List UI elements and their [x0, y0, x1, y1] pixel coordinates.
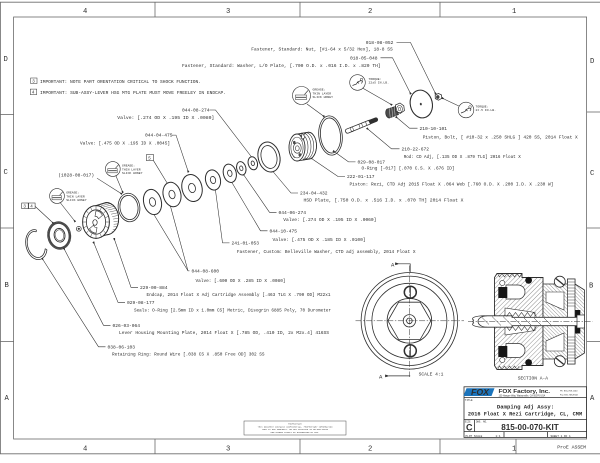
svg-text:Ph: 831-768-1100: Ph: 831-768-1100 — [560, 391, 578, 393]
svg-text:3: 3 — [226, 446, 230, 454]
svg-text:FOR OTHERS EXCEPT AS AUTHORIZE: FOR OTHERS EXCEPT AS AUTHORIZED BY FOX. — [271, 431, 320, 434]
svg-text:018-05-048: 018-05-048 — [350, 55, 378, 61]
svg-text:044-06-274: 044-06-274 — [279, 210, 307, 216]
svg-text:ProE ASSEM: ProE ASSEM — [557, 445, 586, 451]
svg-text:018-08-052: 018-08-052 — [366, 40, 394, 46]
svg-text:Seals: O-Ring [2.5mm ID x 1.0m: Seals: O-Ring [2.5mm ID x 1.0mm CS] Metr… — [134, 308, 331, 314]
svg-text:210-10-101: 210-10-101 — [420, 126, 448, 132]
svg-text:FOX: FOX — [471, 388, 490, 397]
svg-text:Piston, Bolt, [ #10-32 x .250: Piston, Bolt, [ #10-32 x .250 SHLG ] 420… — [423, 135, 578, 141]
svg-text:044-08-274: 044-08-274 — [182, 108, 210, 114]
svg-text:Retaining Ring: Round Wire [.0: Retaining Ring: Round Wire [.038 CS X .8… — [112, 351, 265, 357]
svg-text:Rod: CD Adj, [.135 OD X .879 T: Rod: CD Adj, [.135 OD X .879 TLG] 2016 F… — [404, 154, 521, 160]
svg-text:HSD Plate, [.750 O.D. x .516 I: HSD Plate, [.750 O.D. x .516 I.D. x .070… — [304, 198, 464, 204]
svg-text:IMPORTANT: SUB-ASSY-LEVER HSG: IMPORTANT: SUB-ASSY-LEVER HSG MTG PLATE … — [40, 90, 226, 96]
svg-text:130 Hanger Way, Watsonville, C: 130 Hanger Way, Watsonville, CA 95076 US… — [499, 395, 546, 398]
svg-text:4: 4 — [83, 446, 87, 454]
svg-text:FOX Factory, Inc.: FOX Factory, Inc. — [499, 389, 551, 395]
svg-text:234-04-432: 234-04-432 — [300, 191, 328, 197]
svg-text:C: C — [4, 169, 9, 177]
svg-text:Valve: [.475 OD X .195 ID X .0: Valve: [.475 OD X .195 ID X .0045] — [80, 141, 170, 147]
svg-text:229-00-884: 229-00-884 — [140, 285, 168, 291]
svg-text:029-08-017: 029-08-017 — [358, 159, 386, 165]
svg-text:Valve: [.475 OD X .185 ID X .0: Valve: [.475 OD X .185 ID X .0100] — [273, 237, 366, 243]
svg-text:1:1: 1:1 — [496, 435, 501, 438]
svg-text:Fastener, Standard: Washer, L/: Fastener, Standard: Washer, L/O Plate, [… — [182, 63, 381, 69]
svg-text:241-01-053: 241-01-053 — [232, 240, 260, 246]
svg-text:D: D — [590, 58, 594, 66]
svg-text:O-Ring [-017] [.070 C.S. X .67: O-Ring [-017] [.070 C.S. X .676 ID] — [362, 166, 455, 172]
svg-text:B: B — [5, 282, 10, 290]
svg-text:2: 2 — [368, 8, 372, 16]
svg-text:1: 1 — [512, 446, 516, 454]
svg-text:Fastener, Standard: Nut, [#1-6: Fastener, Standard: Nut, [#1-64 x 5/32 H… — [251, 47, 393, 53]
svg-text:B: B — [589, 283, 594, 291]
svg-text:029-08-177: 029-08-177 — [127, 300, 155, 306]
svg-text:SHEET 1 OF 1: SHEET 1 OF 1 — [551, 435, 571, 438]
svg-text:Piston: Rezi, CTD Adj 2015 Flo: Piston: Rezi, CTD Adj 2015 Float X .064 … — [350, 181, 554, 187]
svg-text:Damping Adj Assy:: Damping Adj Assy: — [497, 403, 554, 410]
svg-text:(1028-08-017): (1028-08-017) — [58, 173, 94, 179]
svg-text:3: 3 — [226, 8, 230, 16]
svg-text:D: D — [4, 56, 8, 64]
svg-text:222-01-117: 222-01-117 — [347, 174, 375, 180]
svg-text:Fax 831-768-9342: Fax 831-768-9342 — [560, 395, 579, 397]
svg-text:SCALE 4:1: SCALE 4:1 — [419, 371, 444, 377]
svg-text:SLICK HONEY: SLICK HONEY — [122, 171, 143, 175]
svg-text:TITLE: TITLE — [465, 399, 473, 402]
svg-text:026-03-064: 026-03-064 — [113, 323, 141, 329]
svg-text:2016 Float X Rezi Cartridge, C: 2016 Float X Rezi Cartridge, CL, CMM — [468, 411, 583, 418]
svg-text:2: 2 — [368, 446, 372, 454]
svg-text:038-06-103: 038-06-103 — [108, 344, 136, 350]
svg-text:044-04-475: 044-04-475 — [145, 133, 173, 139]
svg-text:2±.5 IN.LB.: 2±.5 IN.LB. — [476, 108, 497, 112]
svg-text:Lever Housing Mounting Plate,: Lever Housing Mounting Plate, 2014 Float… — [119, 330, 329, 336]
svg-text:Valve: [.600 OD X .285 ID X .0: Valve: [.600 OD X .285 ID X .0080] — [196, 278, 286, 284]
svg-text:C: C — [466, 423, 473, 433]
svg-text:1: 1 — [512, 8, 516, 16]
svg-text:210-22-672: 210-22-672 — [402, 146, 430, 152]
svg-text:Fastener, Custom: Belleville W: Fastener, Custom: Belleville Washer, CTD… — [237, 249, 416, 255]
svg-text:4: 4 — [83, 8, 87, 16]
svg-text:A: A — [590, 395, 595, 403]
svg-text:A: A — [5, 395, 10, 403]
svg-text:DWG. NO.: DWG. NO. — [476, 421, 487, 424]
svg-text:Endcap, 2014 Float X Adj Cartr: Endcap, 2014 Float X Adj Cartridge Assem… — [147, 292, 331, 298]
svg-text:044-10-475: 044-10-475 — [270, 228, 298, 234]
svg-text:SLICK HONEY: SLICK HONEY — [66, 198, 87, 202]
svg-text:SLICK HONEY: SLICK HONEY — [313, 95, 334, 99]
svg-text:22±5 IN.LB.: 22±5 IN.LB. — [369, 81, 390, 85]
svg-text:815-00-070-KIT: 815-00-070-KIT — [501, 422, 559, 432]
svg-text:Valve: [.274 OD X .195 ID X .0: Valve: [.274 OD X .195 ID X .0060] — [283, 217, 376, 223]
svg-text:044-08-600: 044-08-600 — [192, 268, 220, 274]
svg-text:PLOT SCALE: PLOT SCALE — [466, 435, 483, 438]
svg-text:C: C — [590, 170, 595, 178]
svg-text:Valve: [.274 OD X .195 ID X .0: Valve: [.274 OD X .195 ID X .0080] — [117, 115, 214, 121]
svg-text:IMPORTANT: NOTE PART ORENTATIO: IMPORTANT: NOTE PART ORENTATION CRITICAL… — [40, 79, 201, 85]
svg-text:SECTION A-A: SECTION A-A — [518, 376, 549, 382]
